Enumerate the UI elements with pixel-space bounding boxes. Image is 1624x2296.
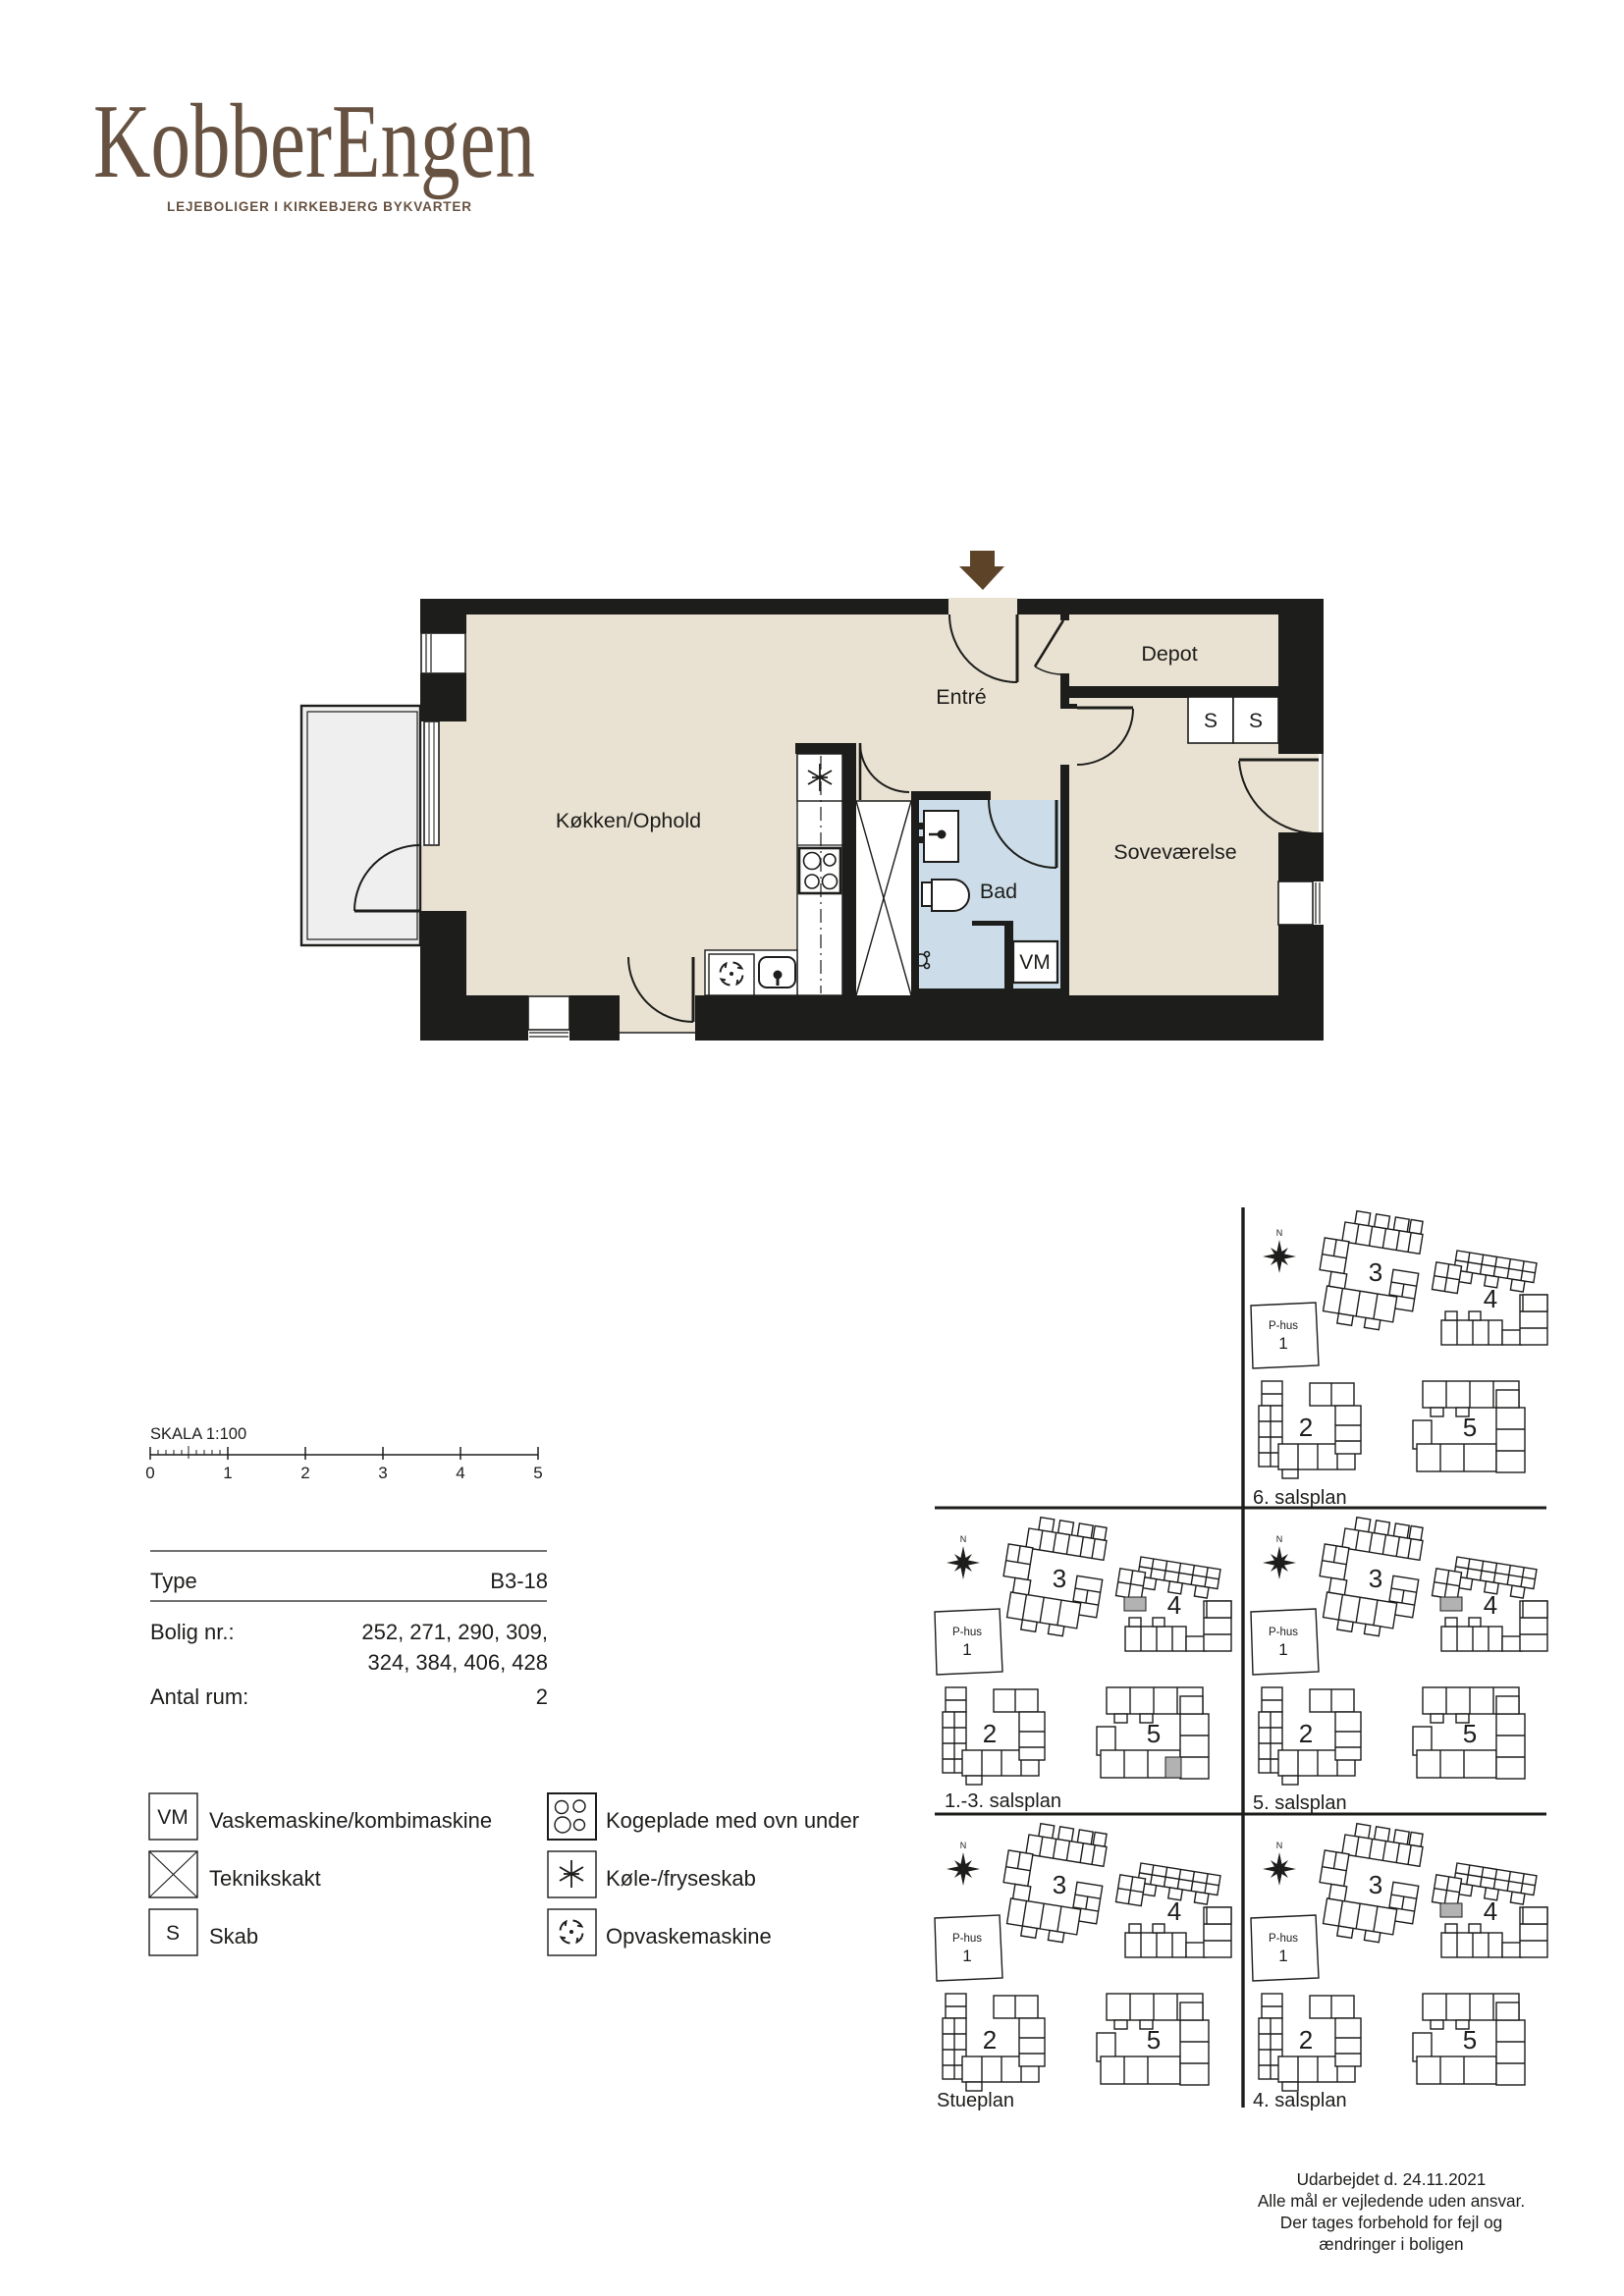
svg-text:Bolig nr.:: Bolig nr.:	[150, 1620, 235, 1644]
svg-text:2: 2	[300, 1464, 309, 1482]
svg-text:Alle mål er vejledende uden an: Alle mål er vejledende uden ansvar.	[1258, 2191, 1525, 2211]
svg-text:Vaskemaskine/kombimaskine: Vaskemaskine/kombimaskine	[209, 1808, 492, 1833]
svg-text:0: 0	[145, 1464, 154, 1482]
svg-text:5: 5	[533, 1464, 542, 1482]
svg-text:6. salsplan: 6. salsplan	[1253, 1487, 1347, 1509]
svg-text:LEJEBOLIGER I KIRKEBJERG BYKVA: LEJEBOLIGER I KIRKEBJERG BYKVARTER	[167, 199, 471, 214]
svg-text:Bad: Bad	[980, 880, 1017, 903]
svg-text:252, 271, 290, 309,: 252, 271, 290, 309,	[361, 1620, 548, 1644]
svg-text:Kogeplade med ovn under: Kogeplade med ovn under	[606, 1808, 859, 1833]
svg-text:3: 3	[378, 1464, 387, 1482]
svg-text:S: S	[166, 1922, 180, 1945]
svg-text:ændringer i boligen: ændringer i boligen	[1319, 2234, 1463, 2254]
svg-text:VM: VM	[157, 1806, 189, 1829]
svg-text:2: 2	[536, 1684, 548, 1709]
svg-text:Depot: Depot	[1141, 642, 1197, 666]
svg-text:Der tages forbehold for fejl o: Der tages forbehold for fejl og	[1280, 2213, 1502, 2232]
svg-text:Teknikskakt: Teknikskakt	[209, 1866, 321, 1891]
svg-text:1.-3. salsplan: 1.-3. salsplan	[945, 1790, 1061, 1812]
svg-text:Antal rum:: Antal rum:	[150, 1684, 248, 1709]
svg-text:Køle-/fryseskab: Køle-/fryseskab	[606, 1866, 756, 1891]
svg-text:S: S	[1249, 710, 1263, 732]
svg-text:SKALA 1:100: SKALA 1:100	[150, 1425, 246, 1443]
svg-text:Soveværelse: Soveværelse	[1113, 840, 1236, 864]
svg-text:B3-18: B3-18	[490, 1569, 548, 1593]
svg-text:Opvaskemaskine: Opvaskemaskine	[606, 1924, 772, 1949]
svg-text:VM: VM	[1019, 951, 1051, 974]
svg-text:4. salsplan: 4. salsplan	[1253, 2090, 1347, 2111]
svg-text:Køkken/Ophold: Køkken/Ophold	[556, 809, 701, 832]
svg-text:Entré: Entré	[936, 685, 986, 709]
svg-text:Stueplan: Stueplan	[937, 2090, 1014, 2111]
svg-text:Udarbejdet d. 24.11.2021: Udarbejdet d. 24.11.2021	[1297, 2169, 1487, 2189]
svg-text:5. salsplan: 5. salsplan	[1253, 1792, 1347, 1814]
svg-text:KobberEngen: KobberEngen	[93, 83, 535, 200]
svg-text:Skab: Skab	[209, 1924, 258, 1949]
svg-text:S: S	[1204, 710, 1218, 732]
svg-text:Type: Type	[150, 1569, 197, 1593]
svg-text:324, 384, 406, 428: 324, 384, 406, 428	[368, 1650, 549, 1675]
svg-text:1: 1	[223, 1464, 232, 1482]
svg-text:4: 4	[456, 1464, 464, 1482]
